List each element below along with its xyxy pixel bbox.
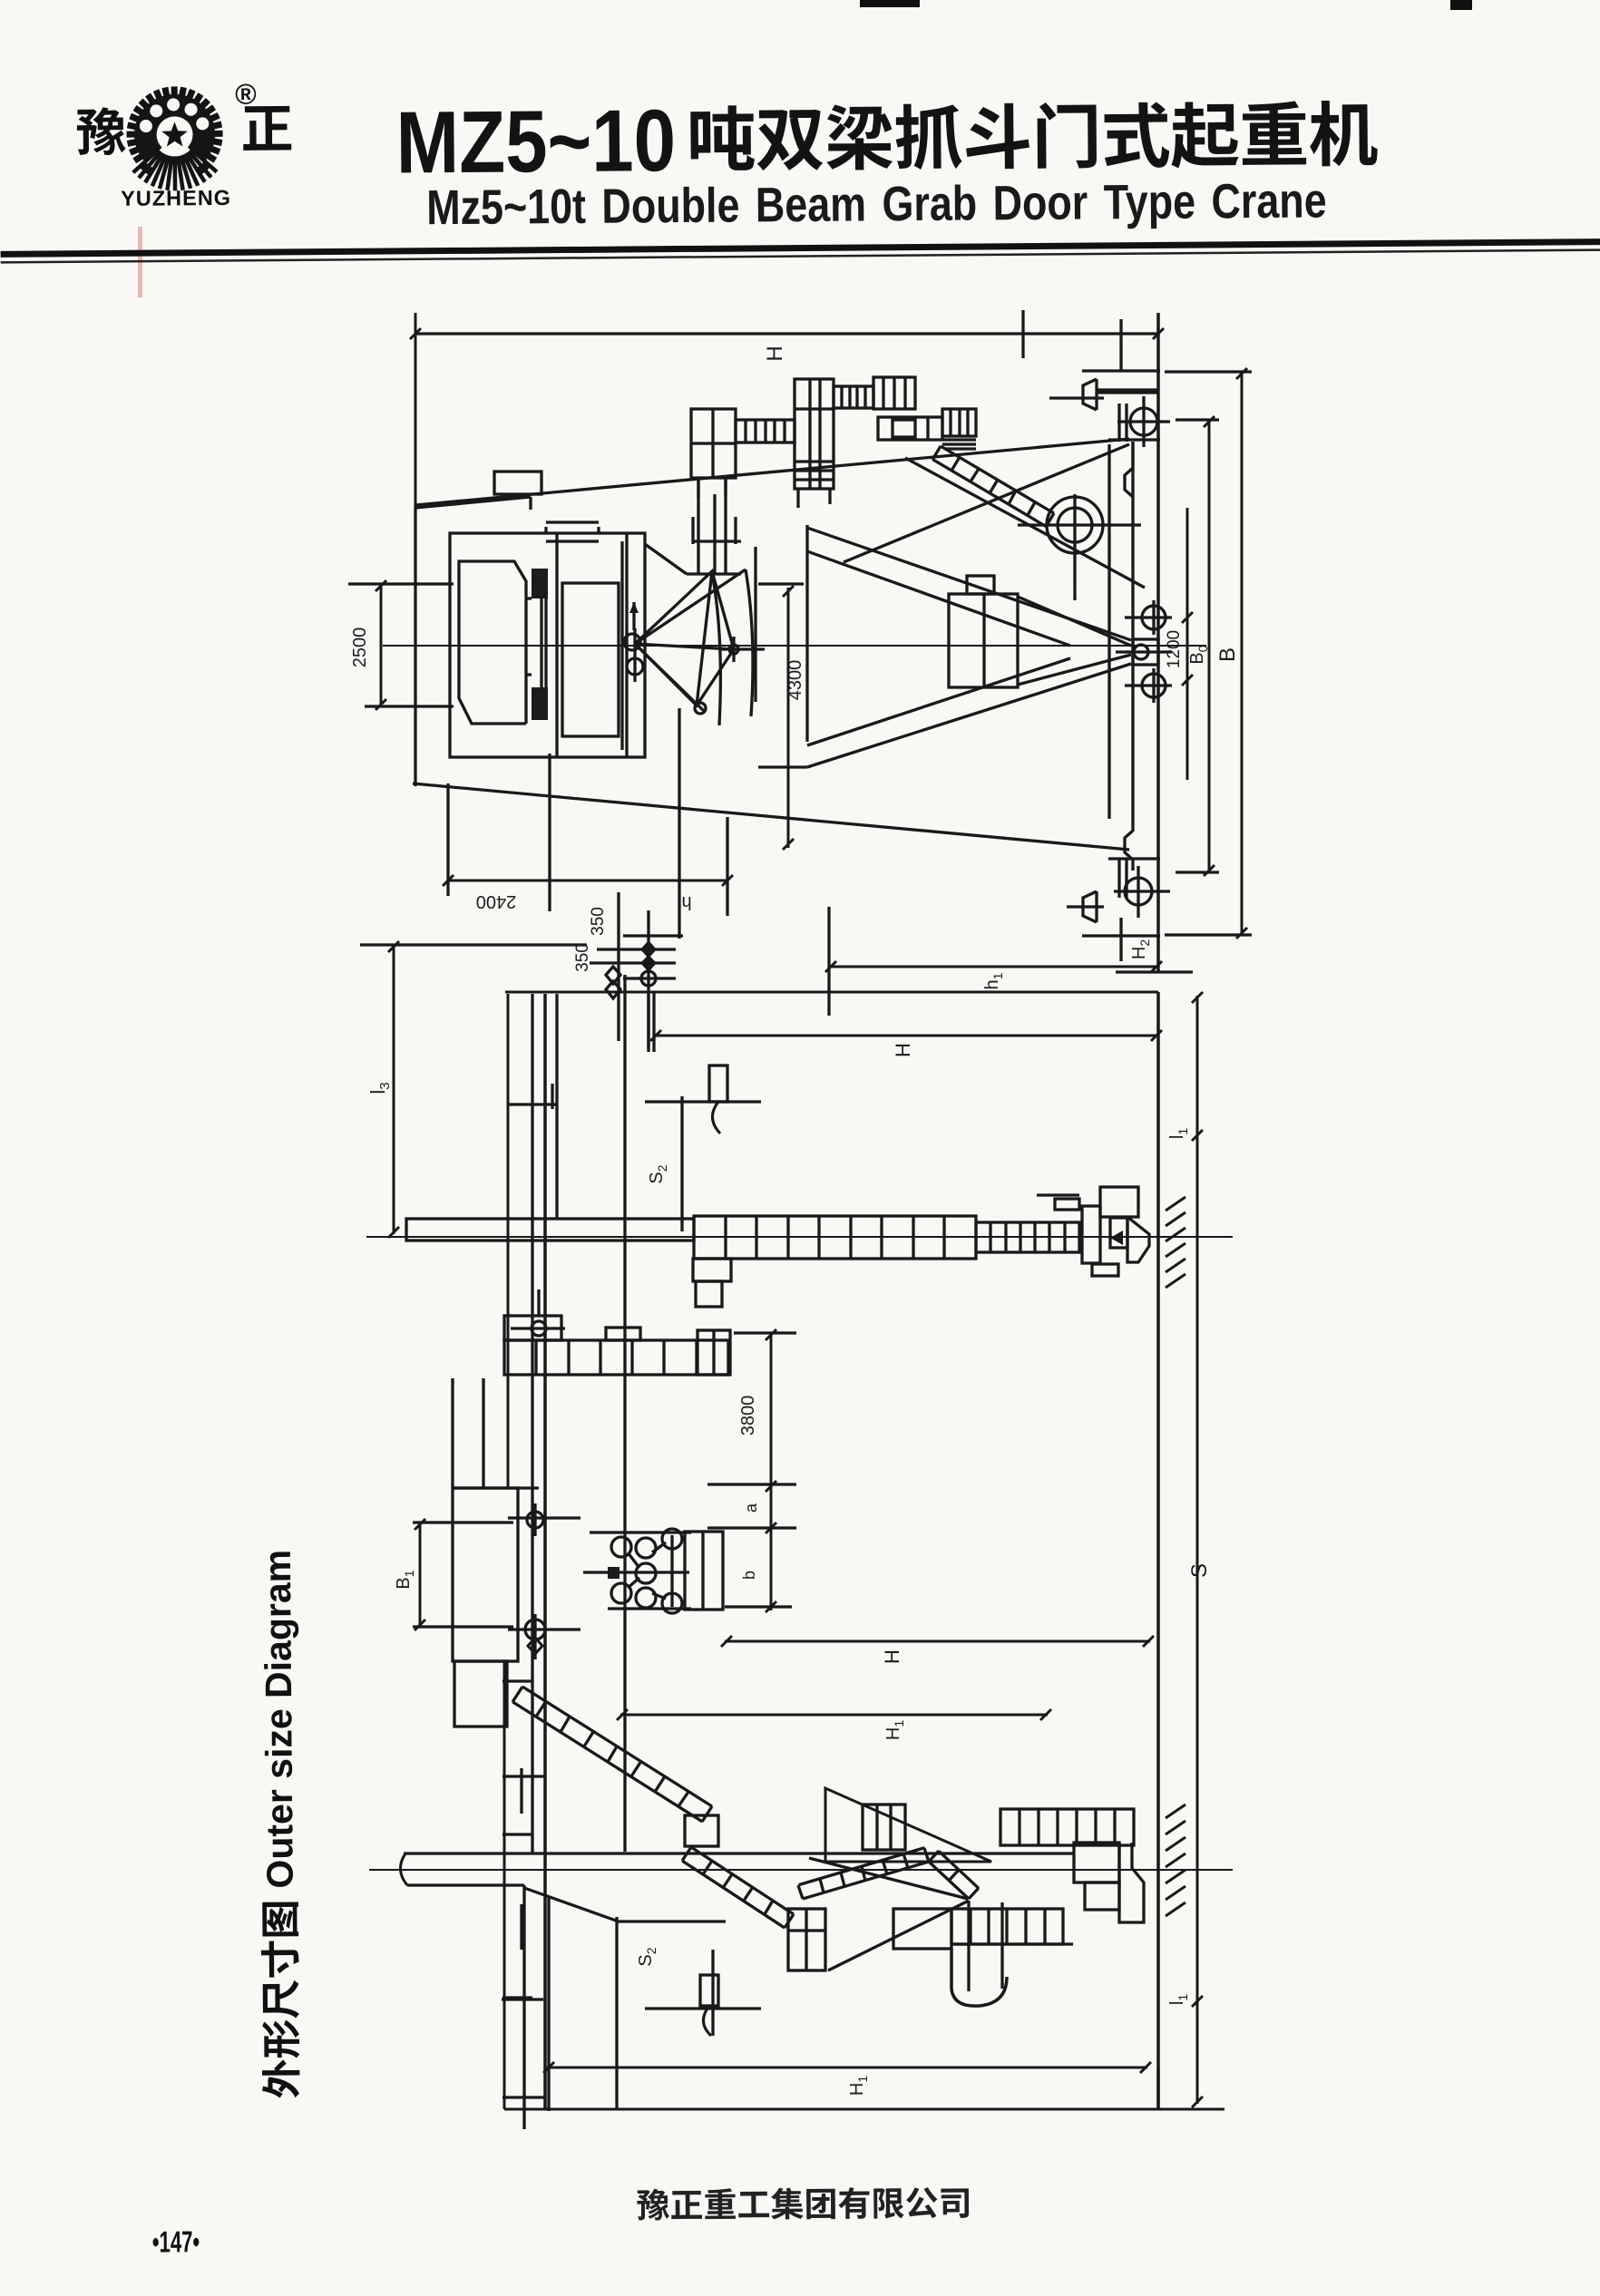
svg-text:a: a bbox=[742, 1503, 760, 1513]
svg-text:350: 350 bbox=[573, 943, 592, 972]
svg-text:2400: 2400 bbox=[476, 891, 517, 911]
svg-text:H1: H1 bbox=[847, 2076, 870, 2096]
svg-text:3800: 3800 bbox=[738, 1396, 758, 1436]
svg-text:B0: B0 bbox=[1187, 645, 1210, 664]
svg-text:H1: H1 bbox=[883, 1720, 906, 1740]
svg-text:l1: l1 bbox=[1167, 1128, 1190, 1139]
svg-text:S2: S2 bbox=[647, 1164, 669, 1183]
svg-text:B: B bbox=[1215, 647, 1240, 662]
svg-text:MZ5~10: MZ5~10 bbox=[395, 92, 676, 192]
svg-text:B1: B1 bbox=[394, 1570, 416, 1589]
svg-text:®: ® bbox=[235, 78, 257, 111]
svg-text:H2: H2 bbox=[1129, 939, 1152, 959]
svg-text:350: 350 bbox=[589, 907, 608, 936]
svg-text:b: b bbox=[740, 1571, 758, 1580]
svg-text:h1: h1 bbox=[982, 972, 1005, 989]
svg-text:•147•: •147• bbox=[152, 2225, 200, 2259]
svg-text:l1: l1 bbox=[1167, 1994, 1190, 2005]
svg-text:l3: l3 bbox=[366, 1082, 393, 1094]
svg-text:Outer size Diagram: Outer size Diagram bbox=[257, 1550, 301, 1889]
svg-text:4300: 4300 bbox=[785, 660, 805, 701]
svg-text:S2: S2 bbox=[636, 1947, 659, 1966]
svg-text:S: S bbox=[1187, 1563, 1212, 1578]
svg-text:H: H bbox=[892, 1043, 914, 1057]
svg-text:H: H bbox=[763, 345, 787, 361]
svg-text:Mz5~10t Double Beam Grab Door: Mz5~10t Double Beam Grab Door Type Crane bbox=[426, 172, 1327, 235]
svg-text:2500: 2500 bbox=[350, 628, 370, 668]
svg-text:h: h bbox=[681, 892, 691, 912]
svg-text:1200: 1200 bbox=[1165, 630, 1184, 668]
svg-text:H: H bbox=[881, 1649, 903, 1664]
